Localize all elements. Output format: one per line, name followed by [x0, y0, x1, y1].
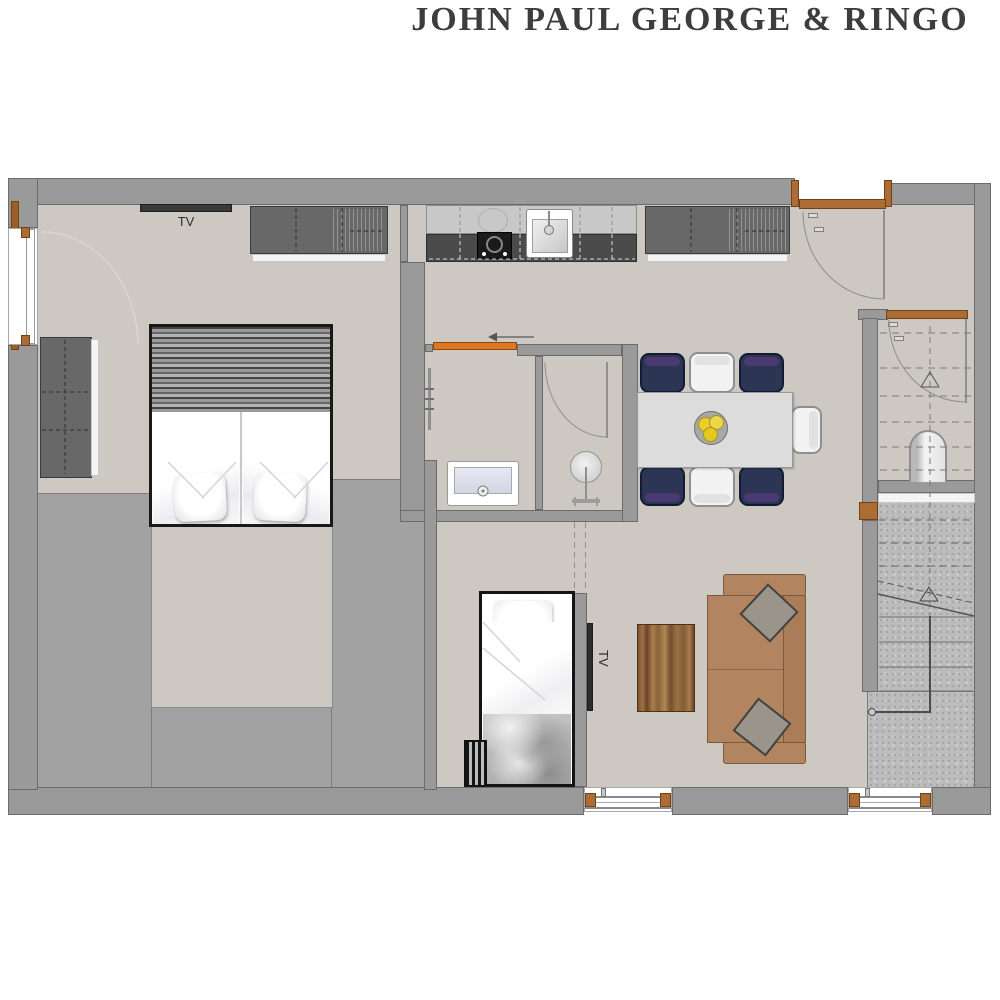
stair-wall-upper: [862, 318, 878, 503]
stair-wall-lower: [862, 520, 878, 692]
low-zone-right: [332, 480, 424, 790]
alcove-nook-wall: [424, 460, 437, 790]
bottom-wall-mid: [672, 787, 848, 815]
entry-wardrobe: [645, 206, 790, 254]
dining-chair: [791, 406, 822, 454]
window-hinge-icon: [21, 227, 30, 238]
dining-chair: [640, 353, 685, 393]
shower-head-icon: [570, 451, 602, 483]
stair-window: [848, 787, 932, 812]
kitchen-sink: [526, 209, 573, 258]
burner-icon: [486, 236, 503, 253]
bed-blanket: [483, 714, 571, 784]
left-wardrobe: [40, 337, 92, 478]
entrance-handle: [814, 227, 824, 232]
top-wall-right: [886, 183, 987, 205]
radiator-tick: [425, 398, 434, 400]
radiator-tick: [425, 408, 434, 410]
bath-top-wall: [517, 344, 622, 356]
nook-right-wall: [573, 593, 587, 787]
window-glazing: [585, 796, 671, 809]
bottom-wall-right: [932, 787, 991, 815]
entrance-jamb-left: [791, 180, 799, 207]
bath-sliding-door: [433, 342, 517, 350]
cooktop-ghost-ring-icon: [478, 208, 508, 233]
stair-flight: [878, 503, 974, 692]
single-bed: [479, 591, 575, 787]
hanging-rail: [333, 209, 385, 251]
dining-chair: [739, 353, 784, 393]
bedroom-alcove-floor: [152, 500, 332, 707]
dining-chair: [689, 352, 735, 393]
bath-divider-wall: [535, 356, 543, 510]
low-zone-bottom: [152, 707, 332, 790]
cooktop: [477, 232, 512, 259]
page-title: JOHN PAUL GEORGE & RINGO: [390, 1, 990, 39]
bottom-wall-left: [8, 787, 584, 815]
knob-icon: [503, 252, 507, 256]
window-hinge-icon: [21, 335, 30, 346]
nook-tv-label: TV: [596, 650, 611, 667]
bed-headboard: [152, 327, 330, 412]
living-window-left: [584, 787, 672, 812]
stair-door-threshold: [886, 310, 968, 319]
bed-pillow: [253, 472, 307, 523]
dining-chair: [739, 466, 784, 506]
fruit-icon: [703, 427, 718, 442]
balcony-window: [8, 228, 38, 345]
window-fitting-icon: [660, 793, 671, 807]
entrance-handle: [808, 213, 818, 218]
shower-door-leaf: [606, 362, 608, 438]
window-handle-icon: [601, 788, 606, 797]
fruit-bowl: [694, 411, 728, 445]
bedroom-wardrobe: [250, 206, 388, 254]
sink-basin: [532, 219, 568, 253]
stair-beam-strip: [878, 493, 975, 503]
dining-chair: [640, 466, 685, 506]
window-handle-icon: [865, 788, 870, 797]
bed-duvet: [483, 622, 571, 716]
bed-ladder: [464, 740, 487, 787]
vanity-sink: [447, 461, 519, 506]
wardrobe-front-strip: [647, 254, 788, 262]
knob-icon: [482, 252, 486, 256]
radiator-tick: [425, 388, 434, 390]
wardrobe-front-strip: [91, 339, 99, 476]
bedroom-tv: [140, 204, 232, 212]
top-wall-left: [8, 178, 795, 205]
dining-chair: [689, 466, 735, 507]
bedroom-bath-wall: [400, 262, 425, 520]
wardrobe-front-strip: [252, 254, 386, 262]
stair-post: [859, 502, 878, 520]
entrance-threshold: [799, 199, 886, 209]
stair-landing: [868, 692, 974, 787]
mattress-divider: [240, 412, 242, 524]
double-bed: [149, 324, 333, 527]
floor-plan-page: JOHN PAUL GEORGE & RINGO: [0, 0, 1000, 1000]
entrance-door-leaf: [883, 210, 885, 299]
window-glazing: [849, 796, 931, 809]
bedroom-tv-label: TV: [140, 214, 232, 229]
coffee-table: [637, 624, 695, 712]
bed-pillow: [173, 472, 227, 523]
vanity-basin: [454, 467, 512, 494]
window-fitting-icon: [920, 793, 931, 807]
stair-door-handle: [888, 322, 898, 327]
window-fitting-icon: [585, 793, 596, 807]
stair-arch-niche: [909, 430, 947, 482]
window-fitting-icon: [849, 793, 860, 807]
sofa-seam: [708, 669, 784, 670]
right-wall: [974, 183, 991, 815]
left-wall-bottom: [8, 345, 38, 790]
window-leaf: [26, 229, 35, 344]
bath-slider-stub: [425, 344, 433, 352]
bedroom-kitchen-stub: [400, 205, 408, 262]
hanging-rail: [729, 209, 787, 251]
nook-tv: [587, 623, 593, 711]
low-zone-left: [38, 494, 152, 790]
stair-door-leaf: [965, 319, 967, 403]
bath-right-wall: [622, 344, 638, 522]
stair-door-handle: [894, 336, 904, 341]
